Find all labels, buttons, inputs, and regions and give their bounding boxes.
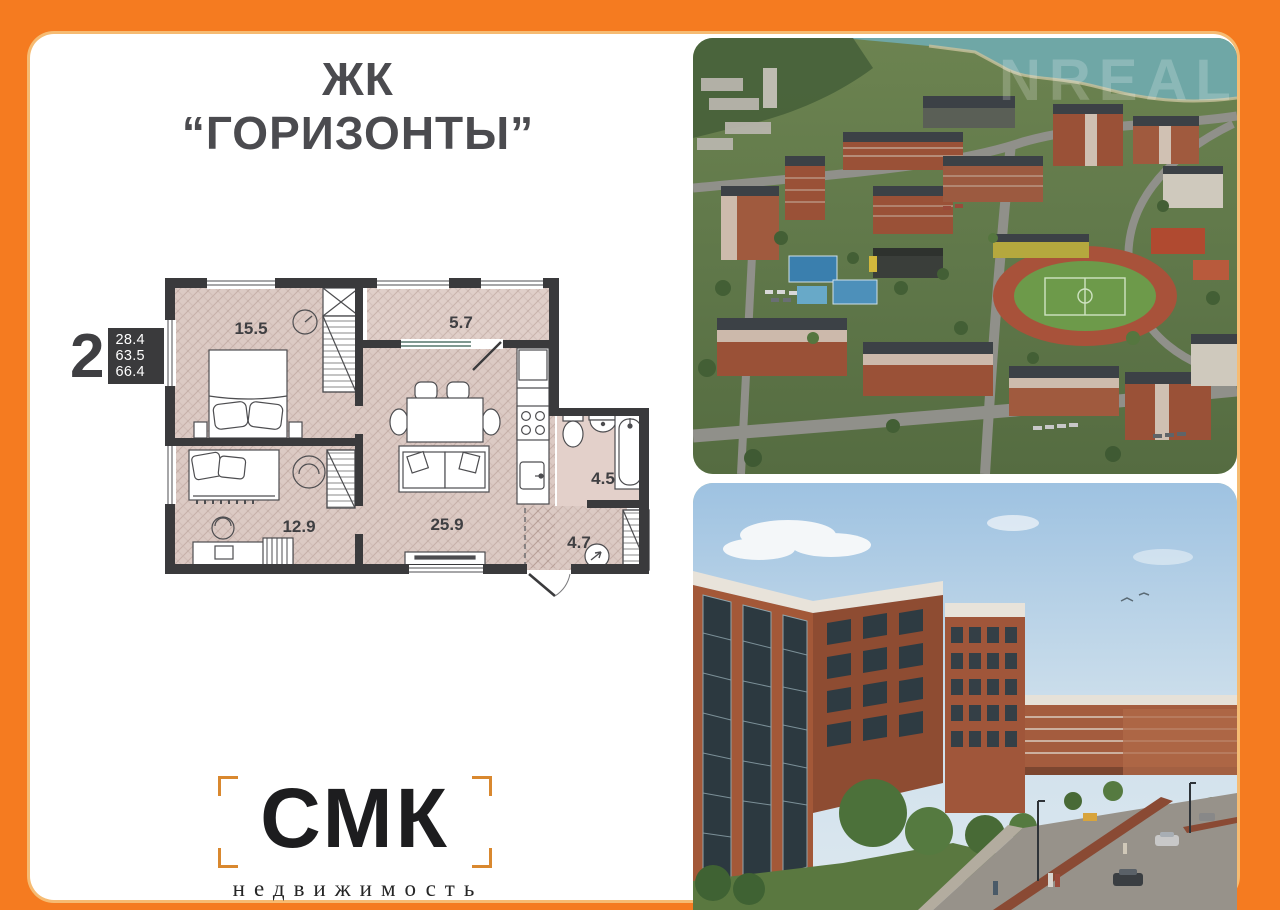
bracket-bottom-left-icon (218, 848, 238, 868)
room-label-living: 25.9 (430, 515, 463, 534)
aerial-illustration: NREAL (693, 38, 1237, 474)
room-label-hallway: 4.7 (567, 533, 591, 552)
floor-plan: 15.5 5.7 25.9 12.9 4.5 4.7 (163, 276, 655, 598)
total-area: 66.4 (115, 364, 159, 380)
apartment-spec: 2 28.4 63.5 66.4 (70, 328, 167, 386)
room-label-balcony: 5.7 (449, 313, 473, 332)
bracket-top-right-icon (472, 776, 492, 796)
flyer-canvas: ЖК “ГОРИЗОНТЫ” 2 28.4 63.5 66.4 (0, 0, 1280, 910)
bracket-top-left-icon (218, 776, 238, 796)
room-label-bedroom: 15.5 (234, 319, 267, 338)
watermark-text: NREAL (999, 48, 1237, 113)
rooms-count: 2 (70, 328, 104, 386)
kitchen-fixtures (517, 348, 549, 504)
developer-logo: СМК недвижимость (218, 772, 492, 902)
logo-subtitle: недвижимость (224, 876, 492, 902)
logo-mark: СМК (218, 772, 492, 864)
living-area: 28.4 (115, 332, 159, 348)
apartment-area: 63.5 (115, 348, 159, 364)
complex-title: ЖК “ГОРИЗОНТЫ” (146, 52, 570, 160)
areas-box: 28.4 63.5 66.4 (108, 328, 167, 384)
street-illustration (693, 483, 1237, 910)
aerial-photo: NREAL (693, 38, 1237, 474)
room-label-bathroom: 4.5 (591, 469, 615, 488)
room-label-second-room: 12.9 (282, 517, 315, 536)
street-photo (693, 483, 1237, 910)
stadium (993, 246, 1177, 346)
bracket-bottom-right-icon (472, 848, 492, 868)
logo-name: СМК (218, 772, 492, 864)
